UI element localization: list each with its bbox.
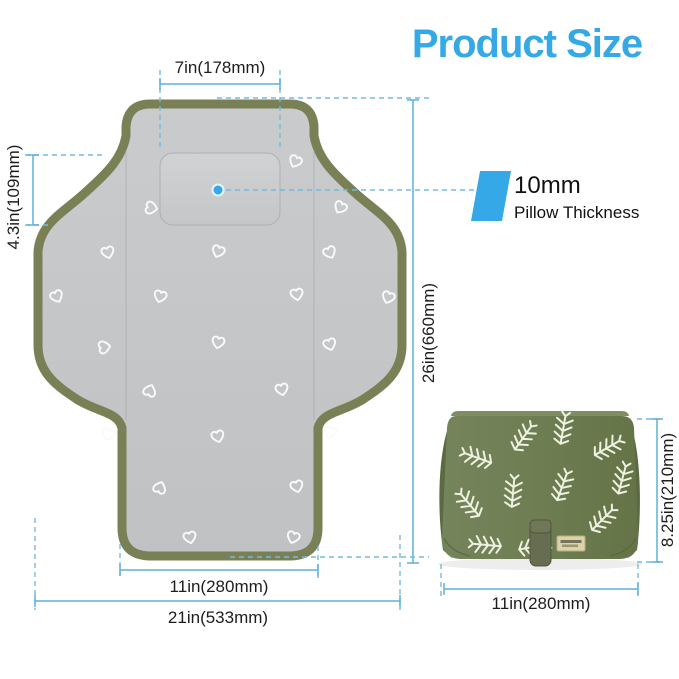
dim-pillow-height-label: 4.3in(109mm) xyxy=(4,127,24,267)
dim-pillow-width-label: 7in(178mm) xyxy=(145,58,295,78)
pillow-thickness-value: 10mm xyxy=(514,172,581,200)
dim-bottom-width-label: 11in(280mm) xyxy=(139,577,299,597)
dim-pad-length-label: 26in(660mm) xyxy=(419,263,439,403)
pillow-thickness-icon xyxy=(471,171,511,221)
brand-label xyxy=(557,536,585,551)
diagram-graphics xyxy=(0,0,679,679)
pad-length-dim-line xyxy=(407,100,419,563)
brand-label-text-line-2 xyxy=(562,545,578,548)
dim-total-width-label: 21in(533mm) xyxy=(138,608,298,628)
brand-label-text-line-1 xyxy=(561,540,582,543)
pillow-height-dim-line xyxy=(27,155,39,225)
changing-pad-illustration xyxy=(38,104,402,556)
bottom-width-dim-line xyxy=(120,564,318,576)
pillow-thickness-label: Pillow Thickness xyxy=(514,203,639,223)
bag-top-edge xyxy=(451,411,629,416)
folded-bag-illustration xyxy=(438,411,642,570)
dim-bag-width-label: 11in(280mm) xyxy=(461,594,621,614)
dim-bag-height-label: 8.25in(210mm) xyxy=(658,420,678,560)
bag-strap-buckle xyxy=(530,520,551,533)
product-size-diagram: Product Size 7in(178mm) 4.3in(109mm) 26i… xyxy=(0,0,679,679)
page-title: Product Size xyxy=(378,22,676,67)
pillow-center-dot xyxy=(213,185,224,196)
pillow-width-dim-line xyxy=(160,78,280,90)
